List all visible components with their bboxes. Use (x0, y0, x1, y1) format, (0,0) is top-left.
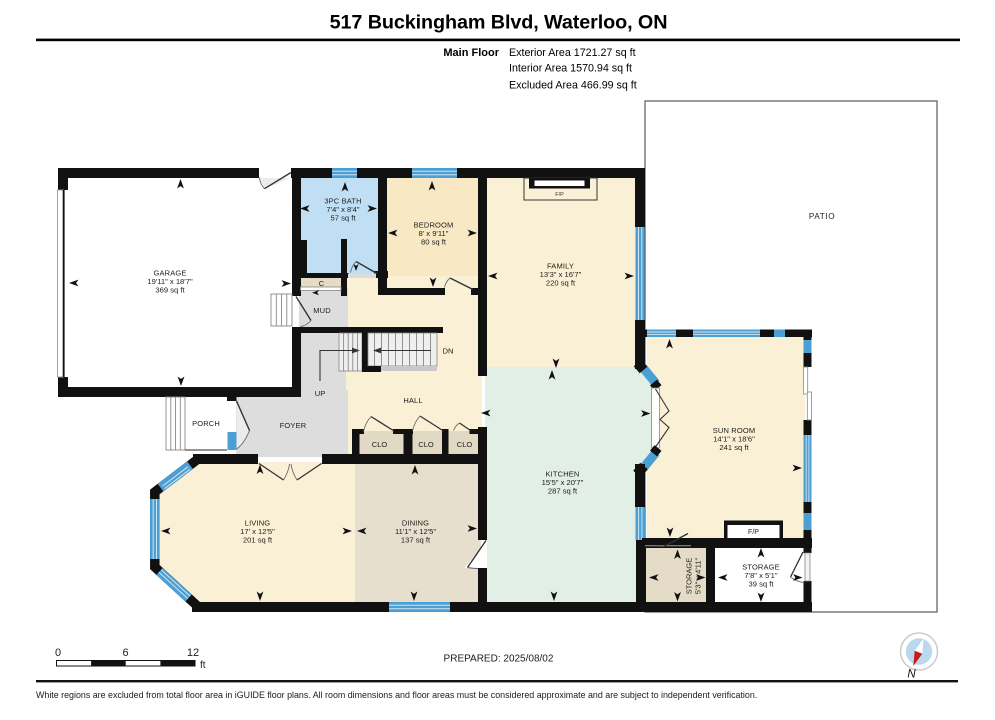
svg-text:12: 12 (187, 647, 199, 659)
svg-text:57 sq ft: 57 sq ft (331, 214, 357, 223)
svg-text:STORAGE: STORAGE (685, 558, 694, 595)
svg-text:PATIO: PATIO (809, 212, 835, 221)
svg-text:ft: ft (200, 660, 206, 671)
svg-text:Excluded Area 466.99 sq ft: Excluded Area 466.99 sq ft (509, 80, 637, 92)
svg-text:287 sq ft: 287 sq ft (548, 487, 578, 496)
svg-text:CLO: CLO (418, 440, 434, 449)
svg-text:201 sq ft: 201 sq ft (243, 536, 273, 545)
svg-text:369 sq ft: 369 sq ft (155, 286, 185, 295)
svg-text:Interior Area 1570.94 sq ft: Interior Area 1570.94 sq ft (509, 63, 632, 75)
svg-text:DN: DN (443, 347, 454, 356)
svg-text:F/P: F/P (748, 529, 759, 536)
svg-text:C: C (319, 279, 325, 288)
svg-text:Main Floor: Main Floor (443, 47, 499, 59)
svg-text:CLO: CLO (372, 440, 388, 449)
svg-text:137 sq ft: 137 sq ft (401, 536, 431, 545)
svg-text:CLO: CLO (457, 440, 473, 449)
svg-text:White regions are excluded fro: White regions are excluded from total fl… (36, 690, 757, 700)
svg-text:HALL: HALL (403, 396, 422, 405)
svg-text:FOYER: FOYER (280, 421, 307, 430)
svg-text:PORCH: PORCH (192, 419, 220, 428)
svg-text:PREPARED: 2025/08/02: PREPARED: 2025/08/02 (444, 654, 554, 665)
svg-text:N: N (907, 669, 916, 681)
svg-text:517 Buckingham Blvd, Waterloo,: 517 Buckingham Blvd, Waterloo, ON (330, 12, 668, 34)
svg-text:6: 6 (122, 647, 128, 659)
svg-text:UP: UP (315, 389, 326, 398)
svg-text:0: 0 (55, 647, 61, 659)
svg-text:F/P: F/P (555, 192, 564, 198)
svg-text:80 sq ft: 80 sq ft (421, 238, 447, 247)
svg-text:241 sq ft: 241 sq ft (719, 443, 749, 452)
svg-text:220 sq ft: 220 sq ft (546, 279, 576, 288)
svg-text:39 sq ft: 39 sq ft (749, 580, 775, 589)
svg-text:MUD: MUD (313, 306, 331, 315)
svg-text:Exterior Area 1721.27 sq ft: Exterior Area 1721.27 sq ft (509, 47, 636, 59)
